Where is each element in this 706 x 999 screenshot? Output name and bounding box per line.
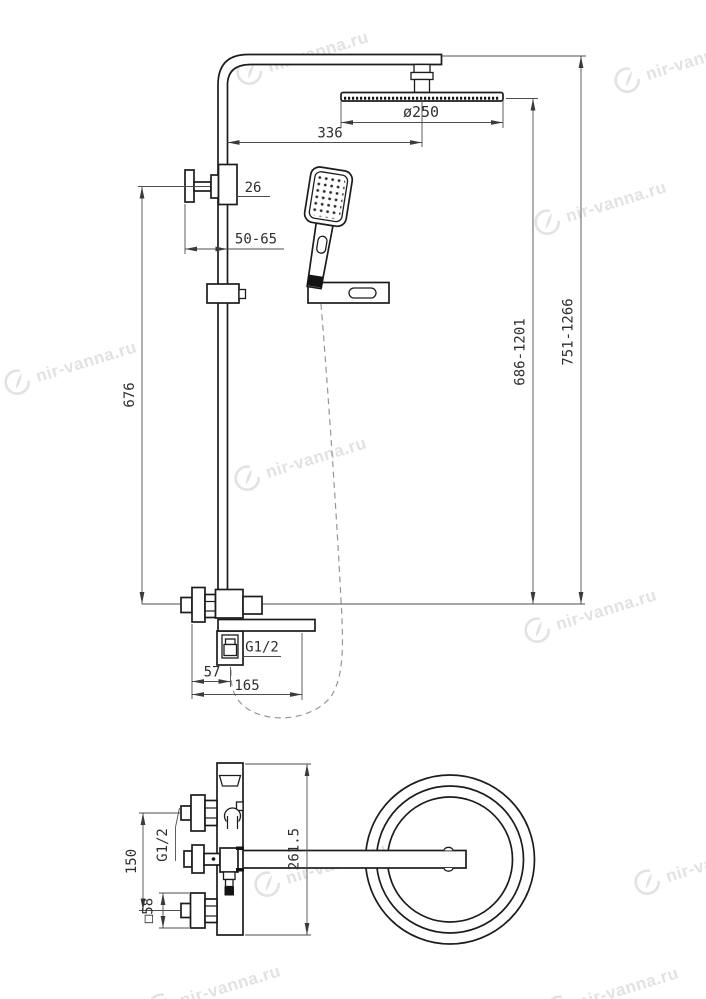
mixer-right-port xyxy=(243,597,262,615)
dim-text-spout-reach: 165 xyxy=(234,678,259,694)
watermark-text: nir-vanna.ru xyxy=(554,585,659,634)
watermark-text: nir-vanna.ru xyxy=(564,177,669,226)
dim-text-escutcheon-size: □58 xyxy=(141,898,157,923)
dim-arm-reach: 336 xyxy=(228,100,423,147)
overhead-connector xyxy=(411,65,433,93)
hand-shower xyxy=(293,166,353,291)
watermark: nir-vanna.ru xyxy=(533,175,669,237)
mixer-body xyxy=(216,590,244,619)
nir-vanna-logo-icon xyxy=(613,66,642,95)
dim-total-min-max: 751-1266 xyxy=(561,56,582,604)
wall-bracket xyxy=(185,165,237,205)
hose-outlet-g12 xyxy=(217,631,243,665)
nir-vanna-logo-icon xyxy=(147,992,176,999)
dim-text-arm-reach: 336 xyxy=(317,126,342,142)
watermark: nir-vanna.ru xyxy=(545,961,681,999)
dim-bracket-size: 26 xyxy=(237,180,270,197)
watermark-text: nir-vanna.ru xyxy=(664,837,706,886)
shower-system-drawing: nir-vanna.ru nir-vanna.ru nir-vanna.ru n… xyxy=(0,0,706,999)
dim-text-top-depth: 261.5 xyxy=(287,828,303,870)
dim-text-inlet-spacing: 150 xyxy=(124,849,140,874)
label-inlet-thread: G1/2 xyxy=(155,808,180,862)
nir-vanna-logo-icon xyxy=(633,868,662,897)
handle-end xyxy=(181,598,192,613)
slider-holder xyxy=(207,284,246,303)
inlet-valve-top xyxy=(181,795,217,831)
plate-top-bracket xyxy=(220,776,241,787)
handle-hex-nut xyxy=(205,595,216,618)
dim-text-wall-clearance: 50-65 xyxy=(235,232,277,248)
drawing-sheet: nir-vanna.ru nir-vanna.ru nir-vanna.ru n… xyxy=(0,0,706,999)
nir-vanna-logo-icon xyxy=(3,368,32,397)
dim-text-bracket-size: 26 xyxy=(245,180,262,196)
inlet-valve-bottom xyxy=(181,893,217,928)
dim-text-total-min-max: 751-1266 xyxy=(561,298,577,365)
watermark-text: nir-vanna.ru xyxy=(576,963,681,999)
watermark: nir-vanna.ru xyxy=(523,583,659,645)
watermark: nir-vanna.ru xyxy=(613,33,706,95)
overhead-shower-head xyxy=(341,93,503,102)
nir-vanna-logo-icon xyxy=(533,208,562,237)
wall-bracket-plan xyxy=(184,845,220,873)
watermark: nir-vanna.ru xyxy=(633,835,706,897)
dim-text-overhead-min-max: 686-1201 xyxy=(513,318,529,385)
watermark-text: nir-vanna.ru xyxy=(266,27,371,76)
watermark-text: nir-vanna.ru xyxy=(34,337,139,386)
dim-text-hose-thread: G1/2 xyxy=(245,640,279,656)
nir-vanna-logo-icon xyxy=(523,616,552,645)
spout-joint-bottom xyxy=(444,868,453,871)
dim-wall-clearance: 50-65 xyxy=(185,204,284,254)
dim-top-depth: 261.5 xyxy=(245,764,311,935)
nir-vanna-logo-icon xyxy=(545,994,574,999)
spout-joint-top xyxy=(444,847,453,850)
front-view: ø250 336 26 50-65 xyxy=(122,55,586,718)
watermark: nir-vanna.ru xyxy=(3,335,139,397)
top-view: 261.5 150 G1/2 □58 xyxy=(124,763,535,944)
dim-overhead-min-max: 686-1201 xyxy=(506,99,538,605)
watermark-text: nir-vanna.ru xyxy=(264,433,369,482)
watermark-text: nir-vanna.ru xyxy=(178,961,283,999)
spout xyxy=(218,620,315,632)
dim-text-inlet-thread: G1/2 xyxy=(155,828,171,862)
label-hose-thread: G1/2 xyxy=(243,640,281,657)
mixer-handle xyxy=(192,588,205,623)
dim-text-overhead-diameter: ø250 xyxy=(403,103,439,121)
nir-vanna-logo-icon xyxy=(233,464,262,493)
nir-vanna-logo-icon xyxy=(253,870,282,899)
dim-text-slide-bar-height: 676 xyxy=(122,382,138,407)
spout-plan xyxy=(238,851,466,869)
watermark: nir-vanna.ru xyxy=(233,431,369,493)
dim-inlet-spacing: 150 xyxy=(124,813,180,911)
shower-hose xyxy=(231,304,342,718)
watermark: nir-vanna.ru xyxy=(147,959,283,999)
watermark-text: nir-vanna.ru xyxy=(644,35,706,84)
dim-text-outlet-offset: 57 xyxy=(204,665,221,681)
